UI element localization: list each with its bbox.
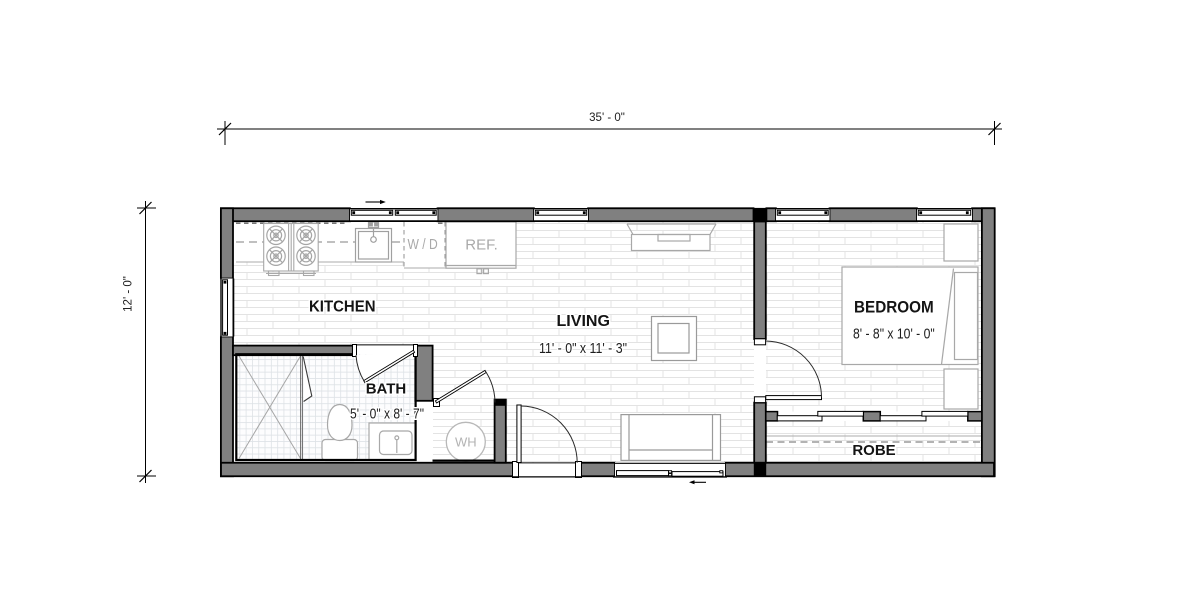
svg-text:8' - 8" x 10' - 0": 8' - 8" x 10' - 0" — [853, 326, 935, 343]
svg-text:BATH: BATH — [366, 381, 407, 398]
svg-text:12' - 0": 12' - 0" — [123, 276, 135, 312]
svg-text:WH: WH — [455, 434, 477, 449]
svg-text:REF.: REF. — [465, 237, 498, 254]
svg-text:35' - 0": 35' - 0" — [589, 112, 625, 124]
svg-text:5' - 0" x 8' - 7": 5' - 0" x 8' - 7" — [350, 406, 424, 423]
svg-text:ROBE: ROBE — [852, 442, 895, 459]
svg-text:BEDROOM: BEDROOM — [854, 299, 934, 317]
svg-text:KITCHEN: KITCHEN — [309, 299, 376, 316]
svg-text:11' - 0" x 11' - 3": 11' - 0" x 11' - 3" — [539, 340, 627, 357]
svg-text:LIVING: LIVING — [557, 313, 611, 330]
svg-text:W / D: W / D — [408, 236, 438, 253]
